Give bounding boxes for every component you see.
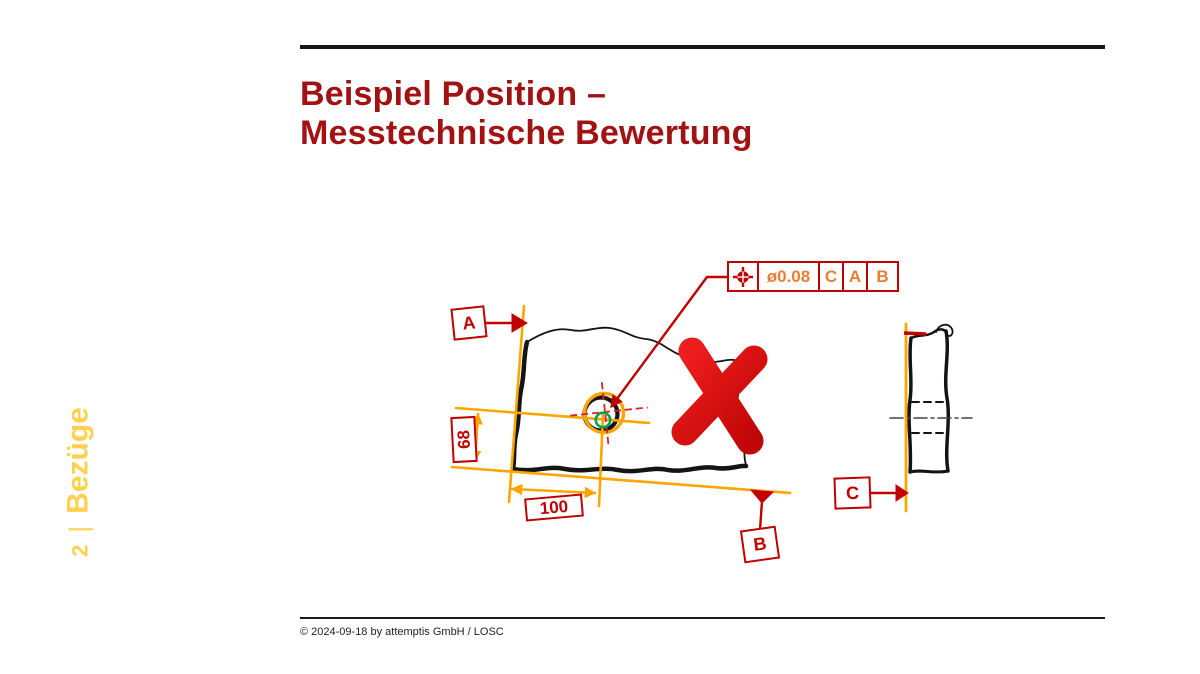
page-number: 2 xyxy=(68,545,94,557)
red-cross-icon xyxy=(685,351,754,441)
dim-100-arrow-line xyxy=(512,489,595,493)
header-rule xyxy=(300,45,1105,49)
side-view xyxy=(890,325,972,472)
datum-label-c: C xyxy=(833,476,871,509)
datum-b-stem xyxy=(760,501,762,530)
fcf-datum-secondary: A xyxy=(842,261,869,292)
footer-copyright: © 2024-09-18 by attemptis GmbH / LOSC xyxy=(300,626,504,638)
theoretical-position-crosshair xyxy=(567,378,651,448)
datum-label-b: B xyxy=(740,526,780,564)
datum-label-a: A xyxy=(450,305,487,340)
side-view-left-edge xyxy=(909,338,911,472)
fcf-datum-primary: C xyxy=(818,261,844,292)
page-title-line1: Beispiel Position – xyxy=(300,75,753,114)
dimension-68-label: 68 xyxy=(450,416,477,463)
side-view-right-edge xyxy=(946,331,949,471)
position-symbol-icon xyxy=(727,261,759,292)
slide: Beispiel Position – Messtechnische Bewer… xyxy=(0,0,1200,674)
datum-b-triangle xyxy=(751,490,773,503)
position-symbol-glyph xyxy=(732,266,754,288)
section-sidebar: 2 | Bezüge xyxy=(62,375,106,590)
side-view-bottom-edge xyxy=(910,471,948,472)
page-title-line2: Messtechnische Bewertung xyxy=(300,114,753,153)
section-label: Bezüge xyxy=(62,407,96,514)
page-title: Beispiel Position – Messtechnische Bewer… xyxy=(300,75,753,153)
fcf-datum-tertiary: B xyxy=(866,261,899,292)
sidebar-separator: | xyxy=(64,526,95,533)
feature-control-frame: ø0.08 C A B xyxy=(727,261,899,292)
datum-a-triangle xyxy=(512,314,527,332)
side-view-red-tick xyxy=(904,333,926,334)
footer-rule xyxy=(300,617,1105,619)
fcf-tolerance-value: ø0.08 xyxy=(757,261,821,292)
